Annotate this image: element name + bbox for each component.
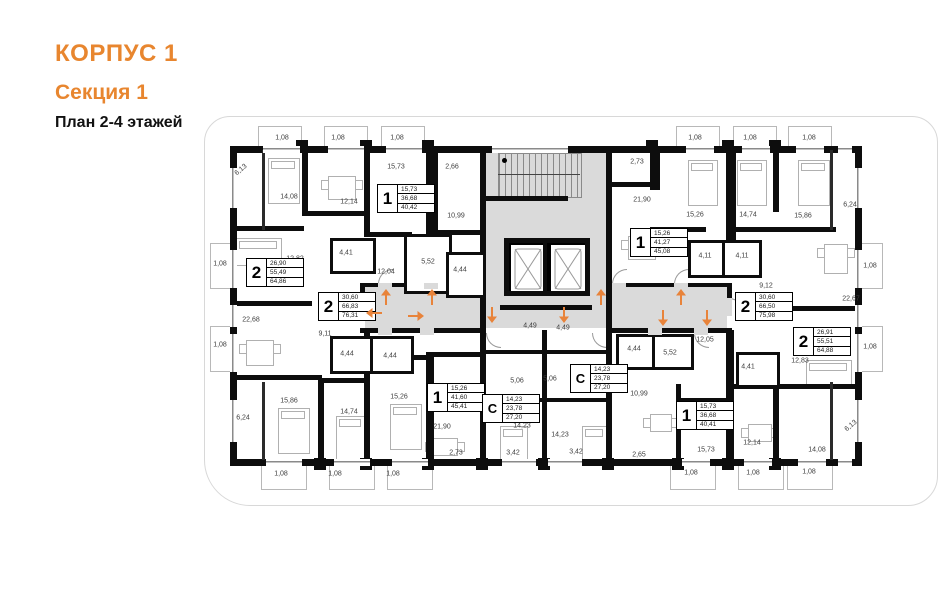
- entrance-arrow-up: [675, 289, 687, 305]
- room-area-label: 2,65: [632, 452, 646, 459]
- bed: [798, 160, 830, 206]
- bed: [688, 160, 718, 206]
- chair: [847, 248, 855, 258]
- apartment-areas: 15,7336,6840,41: [697, 402, 733, 429]
- apartment-areas: 14,2323,7827,20: [503, 395, 539, 422]
- door-gap: [592, 305, 606, 312]
- window: [838, 146, 852, 153]
- room-area-label: 3,42: [506, 450, 520, 457]
- wall: [364, 146, 370, 236]
- apartment-label-apt-2-top-left: 226,9055,4964,86: [246, 258, 304, 287]
- room-area-label: 12,14: [340, 199, 358, 206]
- window: [796, 146, 824, 153]
- room-area-label: 14,08: [808, 447, 826, 454]
- door-gap: [378, 328, 392, 335]
- room-area-label: 1,08: [684, 470, 698, 477]
- apartment-label-apt-1-bottom-right: 115,7336,6840,41: [676, 401, 734, 430]
- area-value: 41,27: [651, 237, 687, 246]
- wall: [230, 375, 322, 380]
- loggia-wall: [262, 150, 265, 230]
- door-gap: [727, 298, 732, 316]
- window: [386, 146, 422, 153]
- area-value: 15,73: [697, 402, 733, 410]
- apartment-areas: 26,9155,5164,88: [814, 328, 850, 355]
- loggia-wall: [830, 382, 833, 460]
- room-area-label: 10,99: [630, 391, 648, 398]
- wall: [504, 238, 590, 243]
- window: [855, 305, 862, 327]
- wall: [728, 227, 836, 232]
- wall: [585, 238, 590, 296]
- staircase-rail: [498, 174, 580, 175]
- wall: [543, 240, 547, 294]
- wall: [482, 196, 568, 201]
- area-value: 36,68: [697, 410, 733, 419]
- area-value: 23,78: [503, 403, 539, 412]
- table: [246, 340, 274, 366]
- room-area-label: 4,44: [340, 351, 354, 358]
- apartment-areas: 15,7336,6840,42: [398, 185, 434, 212]
- room-area-label: 1,08: [386, 471, 400, 478]
- window: [492, 146, 568, 153]
- wall: [426, 352, 484, 357]
- window: [838, 459, 852, 466]
- apartment-areas: 15,2641,2745,08: [651, 229, 687, 256]
- door-gap: [612, 283, 626, 289]
- apartment-label-apt-2-bottom-right: 226,9155,5164,88: [793, 327, 851, 356]
- pillow: [503, 429, 523, 437]
- apartment-areas: 26,9055,4964,86: [267, 259, 303, 286]
- chair: [643, 418, 651, 428]
- room-area-label: 1,08: [274, 471, 288, 478]
- window: [230, 250, 237, 288]
- room-area-label: 21,90: [433, 424, 451, 431]
- entrance-arrow-up: [426, 289, 438, 305]
- area-value: 15,26: [651, 229, 687, 237]
- chair: [321, 180, 329, 190]
- area-value: 45,08: [651, 247, 687, 256]
- wall: [480, 350, 544, 354]
- area-value: 27,20: [591, 383, 627, 392]
- room-area-label: 15,26: [686, 212, 704, 219]
- wall: [773, 388, 779, 462]
- apartment-type: С: [483, 395, 503, 422]
- wall: [320, 378, 370, 383]
- apartment-type: 1: [378, 185, 398, 212]
- wall: [230, 301, 312, 306]
- wall: [504, 238, 509, 296]
- area-value: 27,20: [503, 413, 539, 422]
- room-area-label: 6,24: [236, 415, 250, 422]
- room-area-label: 14,08: [280, 194, 298, 201]
- area-value: 30,60: [339, 293, 375, 301]
- room-area-label: 1,08: [331, 135, 345, 142]
- window: [328, 146, 364, 153]
- entrance-arrow-right: [408, 310, 424, 322]
- pillow: [339, 419, 361, 427]
- area-value: 66,50: [756, 301, 792, 310]
- apartment-areas: 14,2323,7827,20: [591, 365, 627, 392]
- room-area-label: 5,06: [543, 376, 557, 383]
- area-value: 26,90: [267, 259, 303, 267]
- building-title: КОРПУС 1: [55, 40, 182, 68]
- area-value: 14,23: [591, 365, 627, 373]
- title-block: КОРПУС 1 Секция 1 План 2-4 этажей: [55, 40, 182, 132]
- window: [230, 334, 237, 372]
- wall: [318, 378, 324, 462]
- window: [266, 459, 302, 466]
- apartment-label-apt-1-center-right: 115,2641,2745,08: [630, 228, 688, 257]
- chair: [239, 344, 247, 354]
- door-gap: [420, 328, 434, 335]
- apartment-type: 1: [631, 229, 651, 256]
- room-area-label: 22,68: [242, 317, 260, 324]
- apartment-label-apt-1-top: 115,7336,6840,42: [377, 184, 435, 213]
- bed: [737, 160, 767, 206]
- area-value: 23,78: [591, 373, 627, 382]
- bed: [390, 404, 422, 450]
- wall: [302, 146, 308, 216]
- room-area-label: 5,52: [663, 350, 677, 357]
- chair: [621, 240, 629, 250]
- bathroom: [446, 252, 486, 298]
- wall: [230, 226, 304, 231]
- room-area-label: 1,08: [275, 135, 289, 142]
- wall: [546, 398, 608, 402]
- chair: [817, 248, 825, 258]
- room-area-label: 14,23: [551, 432, 569, 439]
- chair: [741, 428, 749, 438]
- pier: [314, 458, 326, 470]
- area-value: 15,73: [398, 185, 434, 193]
- table: [328, 176, 356, 200]
- entrance-arrow-up: [595, 289, 607, 305]
- window: [263, 146, 300, 153]
- chair: [273, 344, 281, 354]
- window: [855, 334, 862, 372]
- window: [686, 146, 714, 153]
- entrance-arrow-down: [558, 307, 570, 323]
- plan-subtitle: План 2-4 этажей: [55, 114, 182, 132]
- elevator-shaft: [508, 242, 548, 296]
- room-area-label: 6,24: [843, 202, 857, 209]
- entrance-arrow-down: [701, 310, 713, 326]
- room-area-label: 4,44: [453, 267, 467, 274]
- area-value: 64,88: [814, 346, 850, 355]
- pillow: [239, 241, 277, 249]
- chair: [355, 180, 363, 190]
- apartment-areas: 15,2641,6045,41: [448, 384, 484, 411]
- room-area-label: 4,49: [523, 323, 537, 330]
- pillow: [393, 407, 417, 415]
- bed: [336, 416, 366, 460]
- door-gap: [694, 328, 708, 335]
- staircase: [498, 153, 582, 198]
- room-area-label: 15,86: [794, 213, 812, 220]
- room-area-label: 1,08: [746, 470, 760, 477]
- pillow: [281, 411, 305, 419]
- floor-plan-page: { "title": { "building": "КОРПУС 1", "se…: [0, 0, 941, 600]
- window: [855, 250, 862, 288]
- room-area-label: 4,11: [698, 253, 711, 260]
- window: [334, 459, 370, 466]
- room-area-label: 5,06: [510, 378, 524, 385]
- area-value: 26,91: [814, 328, 850, 336]
- wall: [302, 211, 370, 216]
- room-area-label: 15,73: [387, 164, 405, 171]
- room-area-label: 10,99: [447, 213, 465, 220]
- elevator-shaft: [548, 242, 588, 296]
- room-area-label: 1,08: [390, 135, 404, 142]
- room-area-label: 4,44: [627, 346, 641, 353]
- loggia-wall: [830, 150, 833, 230]
- room-area-label: 2,66: [445, 164, 459, 171]
- room-area-label: 15,26: [390, 394, 408, 401]
- pillow: [801, 163, 825, 171]
- apartment-label-apt-1-bottom-left: 115,2641,6045,41: [427, 383, 485, 412]
- apartment-label-studio-right: С14,2323,7827,20: [570, 364, 628, 393]
- area-value: 64,86: [267, 277, 303, 286]
- room-area-label: 1,08: [213, 342, 227, 349]
- area-value: 55,51: [814, 336, 850, 345]
- door-gap: [648, 328, 662, 335]
- wall: [504, 291, 590, 296]
- pier: [602, 458, 614, 470]
- room-area-label: 4,41: [339, 250, 353, 257]
- room-area-label: 12,05: [696, 337, 714, 344]
- entrance-arrow-down: [657, 310, 669, 326]
- window: [742, 146, 770, 153]
- pier: [722, 458, 734, 470]
- bed: [278, 408, 310, 454]
- pillow: [691, 163, 713, 171]
- window: [230, 305, 237, 327]
- apartment-type: С: [571, 365, 591, 392]
- room-area-label: 1,08: [802, 135, 816, 142]
- room-area-label: 12,04: [377, 269, 395, 276]
- wall: [612, 182, 652, 187]
- room-area-label: 4,49: [556, 325, 570, 332]
- room-area-label: 2,73: [449, 450, 463, 457]
- room-area-label: 12,14: [743, 440, 761, 447]
- room-area-label: 22,67: [842, 296, 860, 303]
- pier: [422, 140, 434, 152]
- pier: [769, 140, 781, 152]
- wall: [773, 146, 779, 212]
- area-value: 36,68: [398, 193, 434, 202]
- table: [824, 244, 848, 274]
- pier: [722, 140, 734, 152]
- wall: [546, 350, 608, 354]
- apartment-type: 2: [736, 293, 756, 320]
- apartment-type: 2: [794, 328, 814, 355]
- room-area-label: 14,74: [739, 212, 757, 219]
- room-area-label: 15,73: [697, 447, 715, 454]
- room-area-label: 21,90: [633, 197, 651, 204]
- pillow: [271, 161, 295, 169]
- entrance-arrow-left: [366, 307, 382, 319]
- wall: [606, 328, 732, 333]
- room-area-label: 9,12: [759, 283, 773, 290]
- entrance-arrow-up: [380, 289, 392, 305]
- apartment-type: 2: [319, 293, 339, 320]
- wall: [726, 330, 734, 462]
- room-area-label: 12,83: [791, 358, 809, 365]
- area-value: 30,60: [756, 293, 792, 301]
- stair-dot: [502, 158, 507, 163]
- room-area-label: 9,11: [318, 331, 331, 338]
- table: [650, 414, 672, 432]
- window: [502, 459, 536, 466]
- room-area-label: 4,41: [741, 364, 755, 371]
- area-value: 40,41: [697, 420, 733, 429]
- room-area-label: 14,23: [513, 423, 531, 430]
- room-area-label: 1,08: [743, 135, 757, 142]
- bed: [806, 360, 852, 386]
- area-value: 14,23: [503, 395, 539, 403]
- pier: [646, 140, 658, 152]
- room-area-label: 4,11: [735, 253, 748, 260]
- room-area-label: 14,74: [340, 409, 358, 416]
- area-value: 15,26: [448, 384, 484, 392]
- apartment-type: 2: [247, 259, 267, 286]
- window: [744, 459, 772, 466]
- area-value: 75,98: [756, 311, 792, 320]
- apartment-label-apt-2-right: 230,6066,5075,98: [735, 292, 793, 321]
- apartment-type: 1: [428, 384, 448, 411]
- room-area-label: 1,08: [213, 261, 227, 268]
- window: [392, 459, 428, 466]
- section-title: Секция 1: [55, 81, 182, 105]
- pillow: [740, 163, 762, 171]
- room-area-label: 5,52: [421, 259, 435, 266]
- window: [682, 459, 710, 466]
- area-value: 45,41: [448, 402, 484, 411]
- pillow: [585, 429, 603, 437]
- room-area-label: 1,08: [802, 469, 816, 476]
- loggia-wall: [262, 382, 265, 460]
- room-area-label: 1,08: [863, 344, 877, 351]
- room-area-label: 4,44: [383, 353, 397, 360]
- entrance-arrow-down: [486, 307, 498, 323]
- window: [548, 459, 582, 466]
- area-value: 40,42: [398, 203, 434, 212]
- window: [798, 459, 826, 466]
- room-area-label: 1,08: [328, 471, 342, 478]
- room-area-label: 3,42: [569, 449, 583, 456]
- area-value: 41,60: [448, 392, 484, 401]
- area-value: 55,49: [267, 267, 303, 276]
- apartment-type: 1: [677, 402, 697, 429]
- room-area-label: 1,08: [688, 135, 702, 142]
- apartment-label-studio-left: С14,2323,7827,20: [482, 394, 540, 423]
- room-area-label: 15,86: [280, 398, 298, 405]
- pillow: [809, 363, 847, 371]
- pier: [476, 458, 488, 470]
- room-area-label: 1,08: [863, 263, 877, 270]
- room-area-label: 2,73: [630, 159, 644, 166]
- apartment-areas: 30,6066,5075,98: [756, 293, 792, 320]
